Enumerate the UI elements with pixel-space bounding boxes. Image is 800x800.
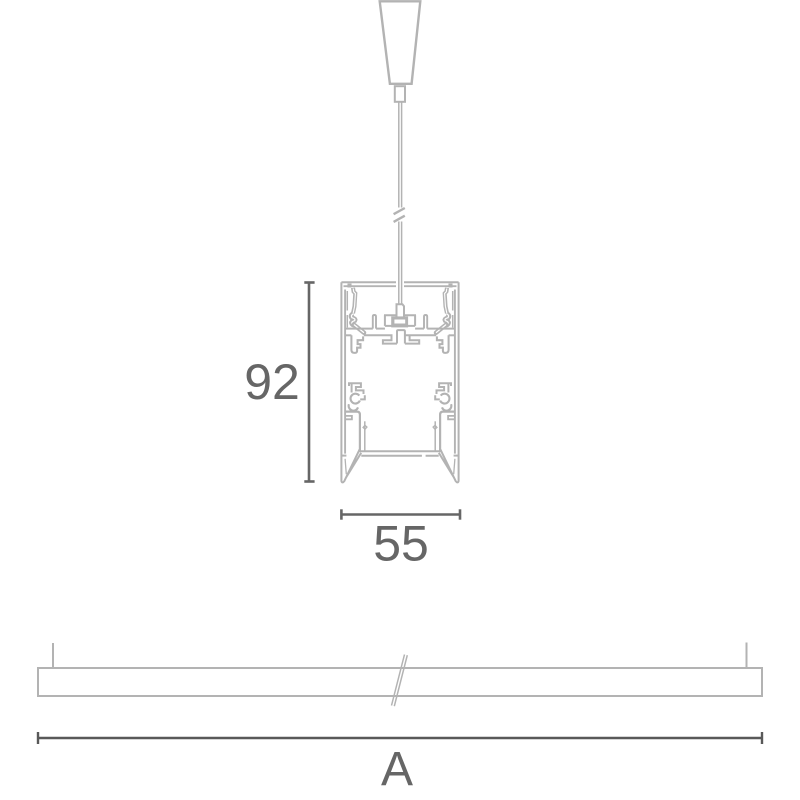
svg-text:55: 55 <box>373 516 429 572</box>
svg-text:A: A <box>381 743 413 796</box>
svg-text:92: 92 <box>244 354 300 410</box>
